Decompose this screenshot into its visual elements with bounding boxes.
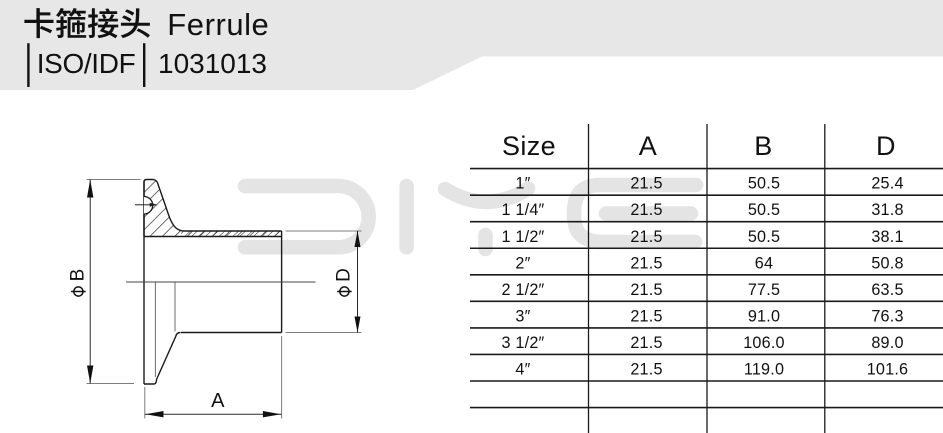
svg-text:21.5: 21.5 bbox=[630, 228, 662, 246]
svg-text:1 1/4″: 1 1/4″ bbox=[502, 201, 545, 219]
svg-text:31.8: 31.8 bbox=[871, 201, 903, 219]
svg-text:89.0: 89.0 bbox=[871, 334, 903, 352]
svg-text:21.5: 21.5 bbox=[630, 201, 662, 219]
svg-text:50.5: 50.5 bbox=[748, 201, 780, 219]
svg-text:B: B bbox=[754, 131, 772, 161]
svg-text:A: A bbox=[211, 390, 225, 412]
svg-text:Ferrule: Ferrule bbox=[167, 7, 269, 42]
svg-text:21.5: 21.5 bbox=[630, 281, 662, 299]
svg-text:ISO/IDF: ISO/IDF bbox=[37, 48, 136, 79]
svg-text:77.5: 77.5 bbox=[748, 281, 780, 299]
svg-text:2″: 2″ bbox=[515, 254, 530, 272]
svg-text:91.0: 91.0 bbox=[748, 307, 780, 325]
svg-text:21.5: 21.5 bbox=[630, 334, 662, 352]
svg-text:B: B bbox=[68, 269, 89, 282]
svg-text:3 1/2″: 3 1/2″ bbox=[502, 334, 545, 352]
svg-text:64: 64 bbox=[755, 254, 773, 272]
svg-text:D: D bbox=[334, 268, 355, 282]
svg-text:21.5: 21.5 bbox=[630, 307, 662, 325]
svg-text:Size: Size bbox=[502, 131, 556, 161]
svg-text:50.5: 50.5 bbox=[748, 175, 780, 193]
svg-text:38.1: 38.1 bbox=[871, 228, 903, 246]
svg-text:50.5: 50.5 bbox=[748, 228, 780, 246]
svg-text:1031013: 1031013 bbox=[158, 48, 267, 79]
svg-text:2 1/2″: 2 1/2″ bbox=[502, 281, 545, 299]
svg-text:50.8: 50.8 bbox=[871, 254, 903, 272]
svg-text:D: D bbox=[876, 131, 896, 161]
svg-text:119.0: 119.0 bbox=[744, 361, 784, 379]
svg-text:63.5: 63.5 bbox=[871, 281, 903, 299]
svg-text:25.4: 25.4 bbox=[871, 175, 903, 193]
svg-text:21.5: 21.5 bbox=[630, 361, 662, 379]
svg-text:76.3: 76.3 bbox=[871, 307, 903, 325]
svg-text:21.5: 21.5 bbox=[630, 175, 662, 193]
svg-text:101.6: 101.6 bbox=[867, 361, 909, 379]
svg-text:4″: 4″ bbox=[515, 361, 530, 379]
svg-text:1 1/2″: 1 1/2″ bbox=[502, 228, 545, 246]
svg-text:A: A bbox=[639, 131, 657, 161]
svg-text:1″: 1″ bbox=[515, 175, 530, 193]
svg-text:3″: 3″ bbox=[515, 307, 530, 325]
svg-text:106.0: 106.0 bbox=[743, 334, 785, 352]
svg-text:21.5: 21.5 bbox=[630, 254, 662, 272]
